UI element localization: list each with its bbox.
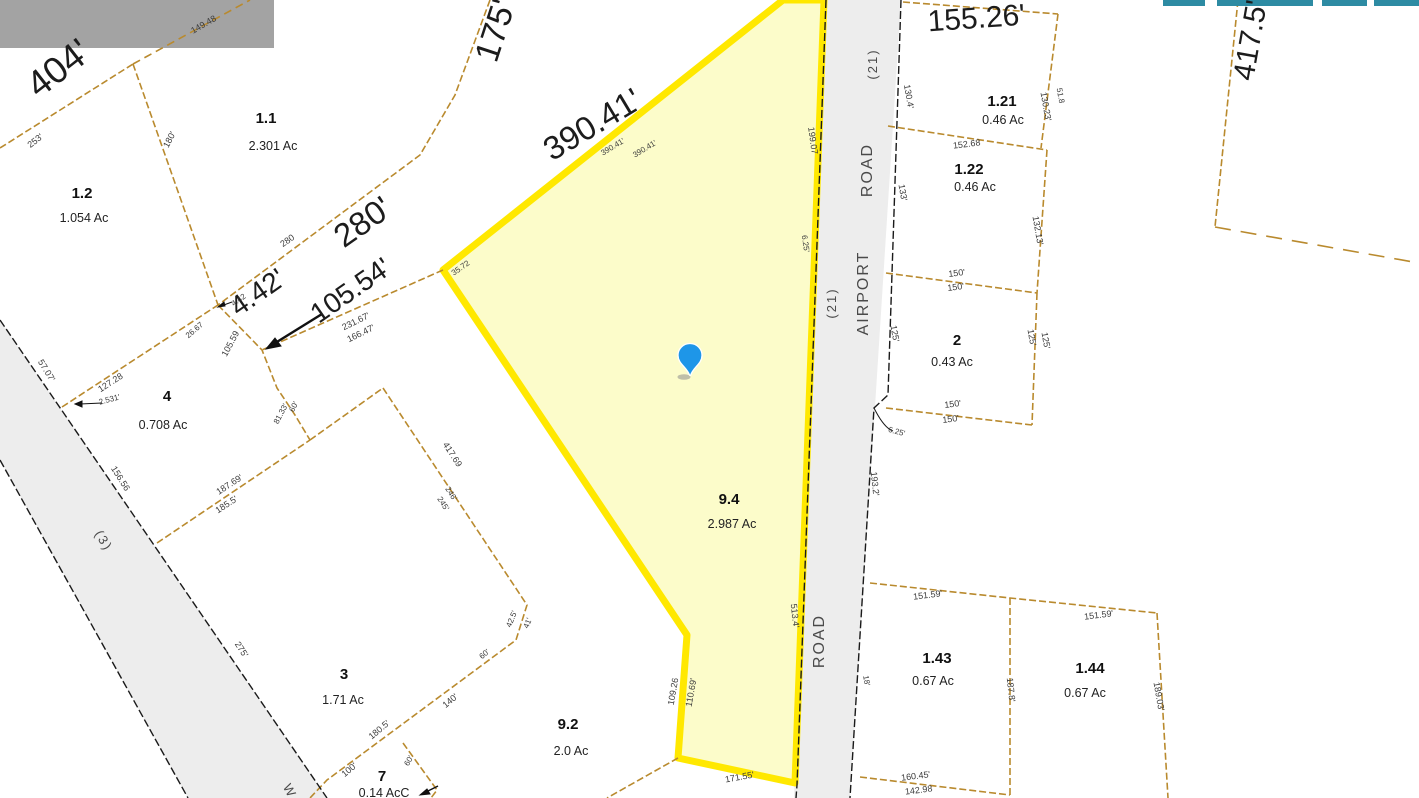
toolbar-button-fragment[interactable] xyxy=(1163,0,1205,6)
parcel-acreage-label: 0.46 Ac xyxy=(954,180,996,194)
parcel-id-label: 7 xyxy=(378,768,386,785)
parcel-id-label: 9.4 xyxy=(719,491,741,508)
parcel-id-label: 2 xyxy=(953,332,961,349)
parcel-id-label: 4 xyxy=(163,388,172,405)
toolbar-button-fragments[interactable] xyxy=(1163,0,1419,6)
toolbar-button-fragment[interactable] xyxy=(1322,0,1367,6)
toolbar-button-fragment[interactable] xyxy=(1374,0,1419,6)
unloaded-tile xyxy=(0,0,274,48)
parcel-acreage-label: 0.67 Ac xyxy=(1064,686,1106,700)
parcel-acreage-label: 1.054 Ac xyxy=(60,211,109,225)
parcel-id-label: 1.1 xyxy=(256,110,277,127)
road-name-label: (21) xyxy=(824,287,839,318)
parcel-id-label: 9.2 xyxy=(558,716,579,733)
parcel-acreage-label: 2.0 Ac xyxy=(554,744,589,758)
parcel-acreage-label: 2.987 Ac xyxy=(708,517,757,531)
pin-shadow xyxy=(678,374,691,380)
road-name-label: AIRPORT xyxy=(855,251,872,336)
dimension-label: 155.26' xyxy=(927,0,1027,38)
road-name-label: ROAD xyxy=(859,143,876,197)
parcel-map[interactable]: 404'175'390.41'280'4.42'105.54'155.26'41… xyxy=(0,0,1419,798)
parcel-acreage-label: 0.46 Ac xyxy=(982,113,1024,127)
road-name-label: (21) xyxy=(865,48,880,79)
parcel-id-label: 1.2 xyxy=(72,185,93,202)
dimension-label: 150' xyxy=(948,267,966,279)
parcel-acreage-label: 0.67 Ac xyxy=(912,674,954,688)
parcel-acreage-label: 2.301 Ac xyxy=(249,139,298,153)
dimension-label: 150' xyxy=(944,398,962,410)
dimension-label: 150' xyxy=(947,281,965,293)
parcel-id-label: 3 xyxy=(340,666,348,683)
parcel-acreage-label: 0.708 Ac xyxy=(139,418,188,432)
dimension-label: 150' xyxy=(942,413,960,425)
parcel-id-label: 1.21 xyxy=(987,93,1016,110)
parcel-id-label: 1.44 xyxy=(1075,660,1105,677)
parcel-acreage-label: 1.71 Ac xyxy=(322,693,364,707)
parcel-acreage-label: 0.14 AcC xyxy=(359,786,410,798)
road-name-label: ROAD xyxy=(811,614,828,668)
map-canvas[interactable]: 404'175'390.41'280'4.42'105.54'155.26'41… xyxy=(0,0,1419,798)
parcel-id-label: 1.22 xyxy=(954,161,983,178)
parcel-acreage-label: 0.43 Ac xyxy=(931,355,973,369)
dimension-label: 18' xyxy=(861,675,872,687)
parcel-id-label: 1.43 xyxy=(922,650,951,667)
